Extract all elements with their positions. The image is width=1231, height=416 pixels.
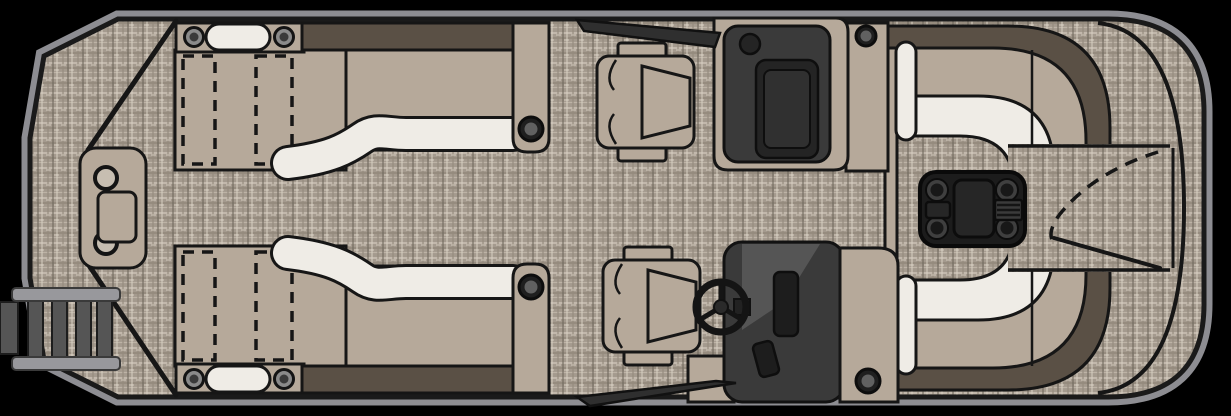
pillow — [206, 24, 270, 50]
bow-cupholder-1 — [95, 167, 117, 189]
ladder-rail-bottom — [12, 357, 120, 370]
arm-cupholder-inner — [525, 281, 538, 294]
table-cupholder-inner — [931, 222, 944, 235]
speaker-cone — [190, 375, 199, 384]
ladder-rung — [52, 301, 67, 357]
chair-seat — [642, 66, 690, 138]
table-cupholder-inner — [931, 184, 944, 197]
boarding-ladder — [0, 288, 120, 370]
ladder-rung — [97, 301, 112, 357]
backrest-band — [302, 23, 515, 50]
bow-tray — [98, 192, 136, 242]
console-speaker — [740, 34, 760, 54]
table-tray — [954, 180, 994, 237]
ladder-rung — [28, 301, 43, 357]
starboard-bow-lounge — [175, 246, 549, 393]
captain-chair-starboard — [603, 247, 700, 365]
captain-chair-port — [597, 43, 694, 161]
speaker-cone — [190, 33, 199, 42]
arm-cupholder-inner — [861, 31, 872, 42]
table-slot — [926, 202, 950, 218]
rear-table — [920, 172, 1025, 246]
arm-cupholder-inner — [525, 123, 538, 136]
ladder-rail-top — [12, 288, 120, 301]
floorplan-canvas — [0, 0, 1231, 416]
gauge-panel — [774, 272, 798, 336]
pillow — [206, 366, 270, 392]
chair-seat — [648, 270, 696, 342]
wheel-hub — [714, 300, 728, 314]
arm-cupholder-inner — [862, 375, 875, 388]
port-console-door — [764, 70, 810, 148]
arm-pillow — [896, 42, 916, 140]
table-cupholder-inner — [1001, 222, 1014, 235]
backrest-band — [302, 366, 515, 393]
port-bow-lounge — [175, 23, 549, 170]
ladder-rung — [76, 301, 91, 357]
speaker-cone — [280, 375, 289, 384]
speaker-cone — [280, 33, 289, 42]
ladder-end-panel — [0, 302, 18, 354]
table-cupholder-inner — [1001, 184, 1014, 197]
bow-gate-console — [80, 148, 146, 268]
stern-gate-opening — [1008, 144, 1182, 272]
pontoon-floorplan — [0, 0, 1231, 416]
